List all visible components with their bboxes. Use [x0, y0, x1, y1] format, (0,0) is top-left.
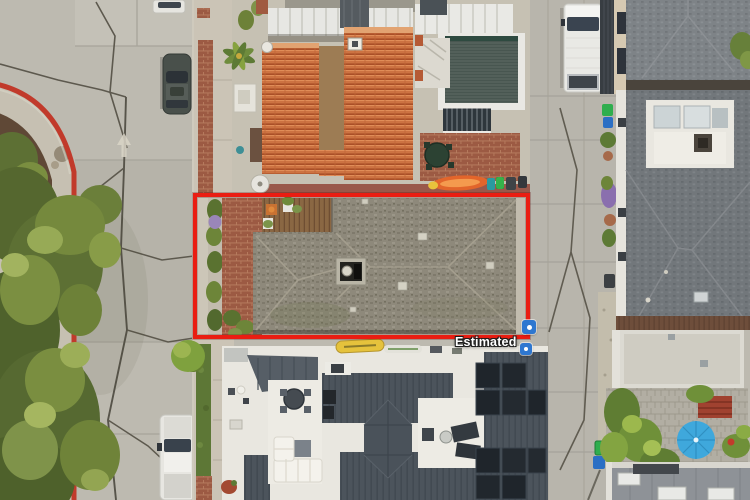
- yellow-kayak: [336, 339, 385, 353]
- spanish-tile-house: [221, 0, 532, 196]
- property-pin-icon-secondary[interactable]: [520, 343, 532, 355]
- rooftop-deck-left: [268, 380, 322, 484]
- aerial-map-view[interactable]: Estimated: [0, 0, 750, 500]
- pin-dot: [527, 325, 532, 330]
- roof-vent: [398, 282, 407, 290]
- rooftop-deck: [646, 100, 734, 168]
- property-pin-icon[interactable]: [522, 320, 536, 334]
- white-van: [560, 4, 605, 92]
- subject-property: [195, 196, 531, 338]
- roof-vent: [362, 199, 368, 204]
- right-house-top: [600, 0, 750, 94]
- right-flat-roof: [612, 330, 744, 388]
- chimney: [336, 258, 366, 285]
- bin-teal: [487, 178, 495, 190]
- pin-dot: [524, 347, 528, 351]
- bin-dark-2: [518, 176, 527, 188]
- parked-car-dark: [160, 54, 191, 114]
- right-house-middle: [616, 90, 750, 330]
- modern-house: [221, 339, 548, 500]
- wood-deck: [262, 197, 332, 235]
- bottom-right-building: [606, 462, 750, 500]
- roof-vent: [418, 233, 427, 240]
- roof-vent: [350, 307, 356, 312]
- bin-dark-1: [506, 177, 516, 190]
- exterior-stairs: [443, 106, 491, 134]
- aerial-photo[interactable]: [0, 0, 750, 500]
- rooftop-deck-right: [418, 398, 484, 468]
- estimated-label: Estimated: [455, 335, 517, 349]
- parked-truck-white: [157, 415, 198, 500]
- parked-car-white-top: [153, 0, 185, 13]
- street-tree-small: [171, 340, 205, 372]
- roof-vent: [486, 262, 494, 269]
- blue-umbrella: [677, 421, 715, 459]
- satellite-dish: [262, 42, 273, 53]
- skylight: [694, 292, 708, 302]
